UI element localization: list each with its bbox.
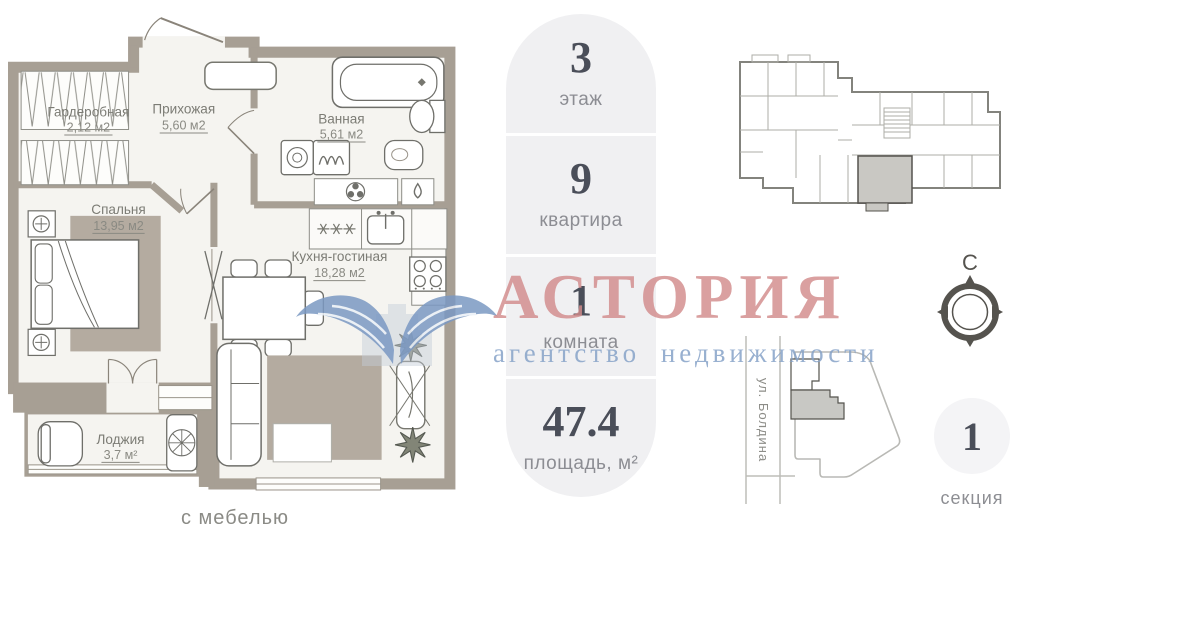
towel-radiator — [313, 141, 349, 175]
compass: С — [933, 246, 1007, 352]
area-label: площадь, м² — [524, 453, 639, 475]
room-label-bedroom: Спальня — [91, 202, 145, 217]
sofa — [217, 343, 261, 466]
highlighted-apartment — [858, 156, 912, 211]
info-area: 47.4 площадь, м² — [506, 379, 656, 498]
floor-label: этаж — [559, 89, 602, 111]
floor-value: 3 — [570, 36, 592, 80]
plant-icon — [395, 329, 427, 361]
building-overview — [720, 50, 1014, 216]
rooms-value: 1 — [570, 279, 592, 323]
subject-building — [791, 390, 844, 419]
bathtub — [332, 57, 443, 107]
plant-icon — [395, 427, 430, 462]
area-value: 47.4 — [543, 400, 620, 444]
water-point — [402, 179, 434, 205]
loggia-radiator — [167, 415, 197, 471]
room-area-hall: 5,60 м2 — [162, 118, 206, 132]
room-area-wardrobe: 2,12 м2 — [67, 120, 111, 134]
coffee-table — [273, 424, 331, 462]
kitchen-window — [256, 478, 381, 490]
listing-sheet: Гардеробная 2,12 м2 Прихожая 5,60 м2 Ван… — [0, 0, 1178, 621]
section-label: секция — [941, 488, 1004, 509]
room-label-loggia: Лоджия — [97, 432, 145, 447]
room-label-hall: Прихожая — [152, 101, 215, 116]
bed — [31, 240, 138, 328]
room-label-kitchen: Кухня-гостиная — [292, 249, 388, 264]
info-rooms: 1 комната — [506, 257, 656, 376]
entrance-door — [143, 18, 225, 48]
info-apartment: 9 квартира — [506, 136, 656, 255]
toilet — [385, 141, 423, 170]
compass-north-label: С — [962, 250, 978, 275]
room-area-bath: 5,61 м2 — [320, 128, 364, 142]
room-area-bedroom: 13,95 м2 — [93, 219, 144, 233]
washing-machine — [281, 141, 313, 175]
hallway-bench — [205, 62, 276, 89]
apartment-info-panel: 3 этаж 9 квартира 1 комната 47.4 площадь… — [506, 14, 656, 497]
site-map: ул. Болдина — [733, 336, 915, 504]
vent-box — [314, 179, 397, 205]
stairs — [884, 108, 910, 138]
stove — [410, 257, 446, 291]
section-circle: 1 — [934, 398, 1010, 474]
apartment-label: квартира — [539, 210, 622, 232]
room-area-kitchen: 18,28 м2 — [314, 266, 365, 280]
furnished-note: с мебелью — [181, 507, 289, 530]
room-label-bath: Ванная — [318, 111, 364, 126]
loggia-chair — [38, 422, 82, 466]
apartment-value: 9 — [570, 157, 592, 201]
room-area-loggia: 3,7 м² — [104, 448, 138, 462]
rooms-label: комната — [543, 332, 618, 354]
bathroom-sink — [410, 100, 445, 132]
kitchen-sink — [368, 211, 404, 244]
neighbor-building — [791, 359, 819, 390]
floorplan-svg: Гардеробная 2,12 м2 Прихожая 5,60 м2 Ван… — [8, 12, 460, 494]
section-badge: 1 секция — [928, 398, 1016, 509]
section-value: 1 — [962, 413, 982, 460]
street-label: ул. Болдина — [756, 378, 771, 462]
room-label-wardrobe: Гардеробная — [47, 104, 129, 119]
bedroom-window — [159, 386, 212, 410]
info-floor: 3 этаж — [506, 14, 656, 133]
